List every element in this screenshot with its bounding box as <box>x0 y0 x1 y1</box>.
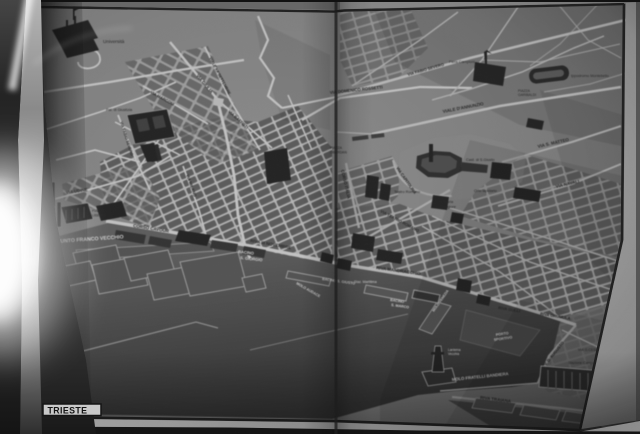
svg-text:TRIESTE: TRIESTE <box>48 405 88 415</box>
